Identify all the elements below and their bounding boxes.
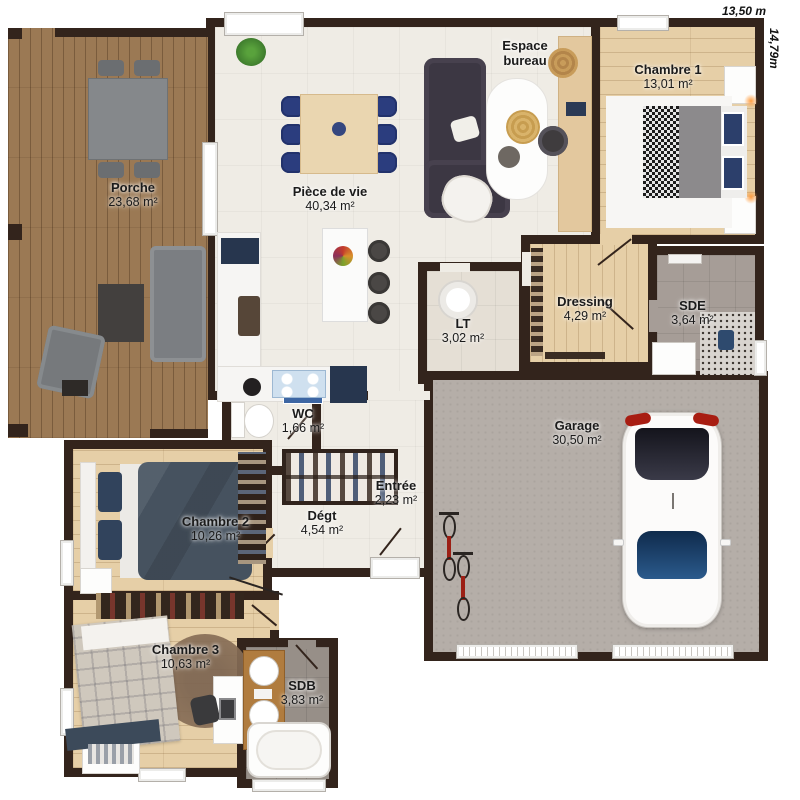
bay-window-living: [224, 12, 304, 36]
washing-machine: [438, 280, 478, 320]
label-lt: LT 3,02 m²: [423, 316, 503, 346]
desk-chair: [538, 126, 568, 156]
towel-rail: [668, 254, 702, 264]
room-name: Chambre 3: [128, 642, 243, 657]
room-area: 23,68 m²: [83, 195, 183, 210]
bed2-nightstand: [80, 568, 112, 594]
room-name: Porche: [83, 180, 183, 195]
label-espace-bureau: Espace bureau: [492, 38, 558, 68]
label-garage: Garage 30,50 m²: [517, 418, 637, 448]
car-antenna: [672, 493, 674, 509]
doorway-hall: [368, 391, 430, 400]
car-mirror-left: [613, 539, 624, 546]
room-name: Dressing: [530, 294, 640, 309]
porch-chair: [134, 60, 160, 76]
porch-post-top: [8, 28, 22, 39]
label-piece-de-vie: Pièce de vie 40,34 m²: [268, 184, 392, 214]
room-name: Chambre 1: [608, 62, 728, 77]
bed2-pillow: [98, 472, 122, 512]
bike-wheel: [457, 597, 470, 621]
room-area: 3,02 m²: [423, 331, 503, 346]
island-stool: [368, 302, 390, 324]
bench-cushion: [88, 744, 134, 764]
laptop: [566, 102, 586, 116]
room-area: 40,34 m²: [268, 199, 392, 214]
island-stool: [368, 240, 390, 262]
kitchen-cabinet-navy: [221, 238, 259, 264]
dressing-shelf: [545, 352, 605, 359]
window-sdb: [252, 779, 326, 792]
room-area: 4,29 m²: [530, 309, 640, 324]
coffee-table-bowl: [498, 146, 520, 168]
car-front-window: [637, 531, 707, 579]
sde-vanity: [652, 342, 696, 375]
room-area: 10,63 m²: [128, 657, 243, 672]
desk3-chair: [189, 694, 220, 727]
label-entree: Entrée 2,23 m²: [356, 478, 436, 508]
porch-post-bottom: [8, 424, 28, 437]
bicycle: [452, 552, 474, 621]
window-chambre3-bottom: [138, 768, 186, 782]
bed1-pillow: [722, 112, 744, 146]
floor-plan: Porche 23,68 m² Pièce de vie 40,34 m² Es…: [0, 0, 800, 800]
shower-drain: [718, 330, 734, 350]
bed1-throw: [643, 106, 679, 198]
kitchen-cabinet-navy: [330, 366, 367, 403]
room-name: Dégt: [282, 508, 362, 523]
room-name: Pièce de vie: [268, 184, 392, 199]
window-chambre2: [60, 540, 74, 586]
coffee-table-tray: [506, 110, 540, 144]
room-area: 2,23 m²: [356, 493, 436, 508]
room-area: 3,83 m²: [262, 693, 342, 708]
doorway-sdb: [288, 640, 316, 649]
label-sde: SDE 3,64 m²: [650, 298, 735, 328]
room-area: 13,01 m²: [608, 77, 728, 92]
room-area: 10,26 m²: [158, 529, 273, 544]
porch-tray: [62, 380, 88, 396]
window-chambre1: [617, 15, 669, 31]
bathtub-basin: [256, 730, 322, 770]
room-name: Espace bureau: [492, 38, 558, 68]
front-door: [370, 557, 420, 579]
cooktop: [272, 370, 326, 398]
porch-chair: [98, 60, 124, 76]
car-rear-window: [635, 428, 709, 480]
car-mirror-right: [720, 539, 731, 546]
garage-door-right: [612, 644, 734, 659]
label-porche: Porche 23,68 m²: [83, 180, 183, 210]
bed2-pillow: [98, 520, 122, 560]
label-degt: Dégt 4,54 m²: [282, 508, 362, 538]
porch-table: [88, 78, 168, 160]
chambre2-wardrobe: [238, 452, 266, 564]
room-name: Chambre 2: [158, 514, 273, 529]
window-porch-living: [202, 142, 218, 236]
bed1-pillow: [722, 156, 744, 190]
room-name: Garage: [517, 418, 637, 433]
bed1-duvet: [679, 106, 721, 198]
label-wc: WC 1,66 m²: [263, 406, 343, 436]
room-name: SDE: [650, 298, 735, 313]
island-stool: [368, 272, 390, 294]
label-dressing: Dressing 4,29 m²: [530, 294, 640, 324]
label-chambre2: Chambre 2 10,26 m²: [158, 514, 273, 544]
room-area: 30,50 m²: [517, 433, 637, 448]
room-name: SDB: [262, 678, 342, 693]
label-chambre3: Chambre 3 10,63 m²: [128, 642, 243, 672]
room-area: 4,54 m²: [282, 523, 362, 538]
window-sde: [754, 340, 767, 376]
label-chambre1: Chambre 1 13,01 m²: [608, 62, 728, 92]
room-area: 3,64 m²: [650, 313, 735, 328]
porch-post-mid: [8, 224, 22, 240]
room-name: LT: [423, 316, 503, 331]
dining-table-decor: [332, 122, 346, 136]
doorway-lt: [440, 263, 470, 272]
dimension-height: 14,79m: [767, 28, 781, 98]
room-name: Entrée: [356, 478, 436, 493]
plant: [236, 38, 266, 66]
desk3-laptop: [219, 698, 236, 720]
room-name: WC: [263, 406, 343, 421]
bed2-headboard: [80, 462, 96, 580]
room-area: 1,66 m²: [263, 421, 343, 436]
porch-bottom-rail: [150, 429, 208, 438]
porch-sofa: [150, 246, 206, 362]
porch-chair: [98, 162, 124, 178]
porch-chair: [134, 162, 160, 178]
chambre3-wardrobe: [96, 593, 244, 619]
kitchen-sink: [238, 296, 260, 336]
car: [622, 412, 722, 628]
porch-coffee-table: [98, 284, 144, 342]
doorway-dressing: [522, 252, 531, 286]
garage-door-left: [456, 644, 578, 659]
label-sdb: SDB 3,83 m²: [262, 678, 342, 708]
toilet-tank: [231, 402, 245, 438]
kitchen-island: [322, 228, 368, 322]
kettle: [243, 378, 261, 396]
dimension-width: 13,50 m: [690, 4, 766, 18]
porch-top-rail: [55, 28, 208, 37]
fruit-plate: [333, 246, 353, 266]
